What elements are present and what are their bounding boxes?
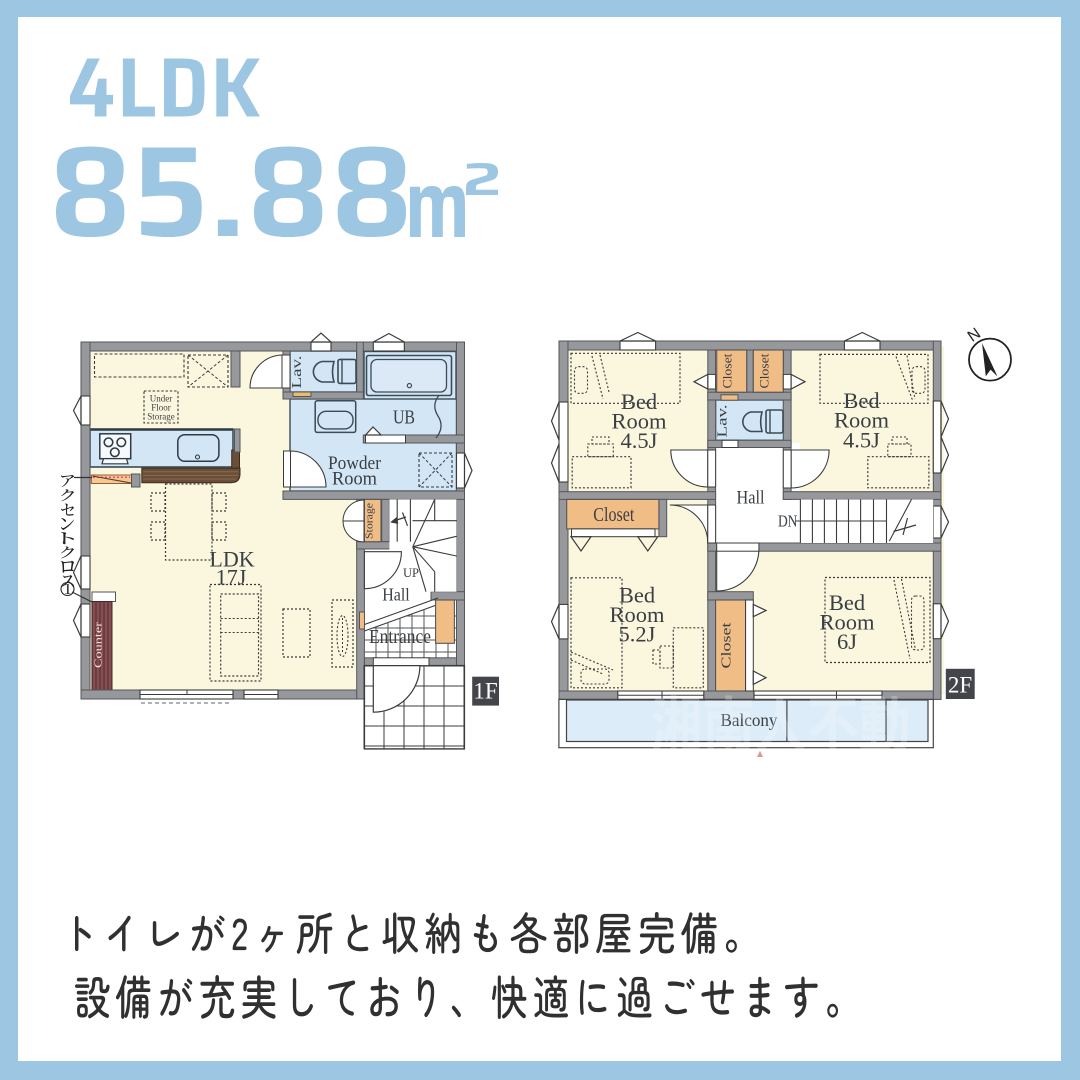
svg-text:5.2J: 5.2J [619,622,656,647]
svg-text:6J: 6J [837,629,857,654]
svg-text:4.5J: 4.5J [843,428,880,453]
svg-text:4.5J: 4.5J [621,428,658,453]
svg-text:Hall: Hall [382,585,410,605]
svg-text:Storage: Storage [364,503,376,539]
svg-text:UP: UP [403,565,419,580]
svg-text:Closet: Closet [593,505,634,526]
svg-text:2F: 2F [948,673,972,698]
svg-text:17J: 17J [216,565,247,590]
svg-text:Counter: Counter [93,622,105,668]
svg-text:Entrance: Entrance [369,626,431,648]
svg-text:Lav.: Lav. [290,356,305,389]
svg-text:Room: Room [332,469,378,489]
svg-text:Storage: Storage [147,412,175,422]
svg-text:DN: DN [778,511,798,530]
svg-text:1F: 1F [473,679,497,704]
svg-text:Lav.: Lav. [716,405,731,438]
svg-text:Closet: Closet [757,353,771,389]
svg-text:UB: UB [393,406,415,428]
svg-text:Closet: Closet [720,622,735,668]
svg-text:Hall: Hall [737,488,765,509]
svg-text:Closet: Closet [721,353,735,389]
